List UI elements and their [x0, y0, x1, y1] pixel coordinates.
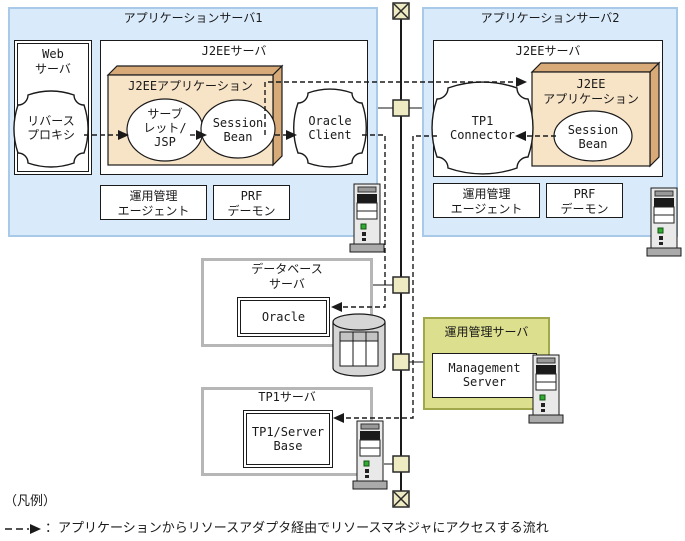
agent-2-box [433, 183, 540, 218]
agent-1-box [100, 185, 207, 220]
tp1-server-base-box [243, 410, 333, 468]
j2ee-server-2-box [433, 40, 663, 177]
web-server-box [14, 40, 92, 175]
diagram-canvas: アプリケーションサーバ1 Web サーバ リバース プロキシ J2EEサーバ J… [0, 0, 685, 541]
prf-1-box [213, 185, 290, 220]
oracle-box [237, 297, 330, 337]
j2ee-server-1-box [100, 40, 368, 175]
management-server-box [432, 353, 537, 398]
prf-2-box [546, 183, 623, 218]
boxes-layer [0, 0, 685, 541]
